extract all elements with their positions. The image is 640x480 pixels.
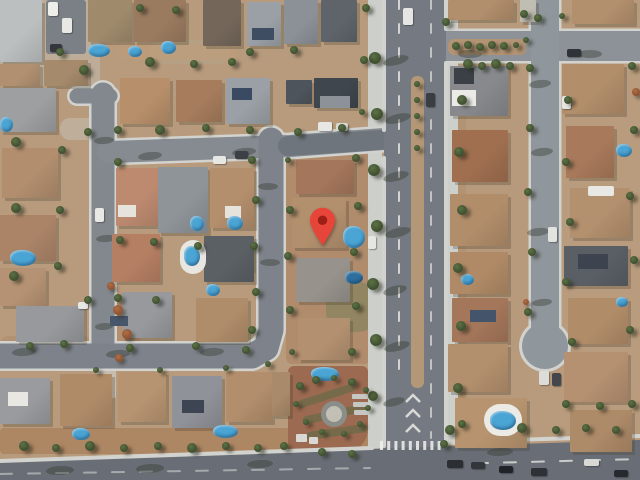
house-roof xyxy=(286,80,312,104)
crosswalk-tick xyxy=(416,441,419,450)
tree xyxy=(348,378,356,386)
vehicle xyxy=(567,49,581,57)
tree xyxy=(223,365,229,371)
house-roof xyxy=(88,0,132,42)
tree xyxy=(60,340,68,348)
house-roof xyxy=(321,0,357,42)
tree xyxy=(440,440,448,448)
swimming-pool xyxy=(0,117,13,132)
tree xyxy=(331,375,337,381)
swimming-pool xyxy=(190,216,204,231)
vehicle xyxy=(447,460,463,468)
tree xyxy=(152,296,160,304)
tree xyxy=(318,448,326,456)
house-roof xyxy=(564,352,628,402)
tree xyxy=(319,429,325,435)
tree xyxy=(9,271,19,281)
crosswalk-tick xyxy=(394,441,397,450)
house-roof xyxy=(566,126,614,178)
tree xyxy=(596,402,604,410)
tree xyxy=(116,236,124,244)
tree-shadow xyxy=(258,183,278,190)
tree xyxy=(457,95,467,105)
street-c-east xyxy=(288,140,380,146)
tree xyxy=(348,450,356,458)
house-roof xyxy=(296,160,354,194)
vehicle xyxy=(471,462,485,469)
house-roof xyxy=(0,0,42,62)
road-median xyxy=(411,76,424,388)
house-roof xyxy=(118,372,166,422)
house-roof xyxy=(298,318,350,360)
tree xyxy=(453,263,463,273)
tree xyxy=(352,302,360,310)
tree xyxy=(354,202,362,210)
swimming-pool xyxy=(128,46,142,57)
tree xyxy=(367,278,379,290)
vehicle xyxy=(368,236,376,249)
swimming-pool xyxy=(213,425,238,438)
tree xyxy=(294,128,302,136)
tree xyxy=(534,14,542,22)
tree-shadow xyxy=(578,50,602,58)
tree xyxy=(194,242,202,250)
tree xyxy=(488,41,496,49)
crosswalk-tick xyxy=(380,441,383,450)
tree xyxy=(566,218,574,226)
tree xyxy=(246,48,254,56)
tree xyxy=(562,158,570,166)
tree xyxy=(248,156,256,164)
tree-shadow xyxy=(260,259,280,266)
house-roof xyxy=(572,0,634,24)
tree xyxy=(476,43,484,51)
house-roof xyxy=(296,258,350,302)
tree xyxy=(202,124,210,132)
tree xyxy=(155,125,165,135)
tree xyxy=(56,48,64,56)
swimming-pool xyxy=(206,284,220,296)
tree xyxy=(526,64,534,72)
tree xyxy=(289,349,295,355)
tree xyxy=(414,145,420,151)
house-roof xyxy=(272,372,290,416)
tree xyxy=(463,59,473,69)
tree xyxy=(626,192,634,200)
tree xyxy=(582,424,590,432)
tree xyxy=(628,62,636,70)
tree xyxy=(513,42,519,48)
tree xyxy=(506,62,514,70)
tree xyxy=(464,41,472,49)
roof-detail xyxy=(470,310,496,322)
swimming-pool xyxy=(161,41,176,54)
tree xyxy=(456,321,466,331)
tree xyxy=(286,206,294,214)
tree xyxy=(517,423,527,433)
tree xyxy=(371,220,383,232)
tree xyxy=(11,137,21,147)
tree xyxy=(250,242,258,250)
tree xyxy=(26,342,34,350)
tree xyxy=(452,42,460,50)
crosswalk-tick xyxy=(402,441,405,450)
tree xyxy=(626,326,634,334)
tree xyxy=(352,154,360,162)
tree xyxy=(453,383,463,393)
house-roof xyxy=(0,64,40,86)
tree xyxy=(341,431,347,437)
house-roof xyxy=(16,306,84,342)
rust-tree xyxy=(115,354,123,362)
roof-detail xyxy=(8,392,28,406)
tree xyxy=(157,367,163,373)
tree xyxy=(520,10,528,18)
tree xyxy=(126,344,134,352)
house-roof xyxy=(204,236,254,282)
tree xyxy=(187,443,197,453)
tree xyxy=(19,441,29,451)
tree xyxy=(368,391,378,401)
vehicle xyxy=(403,8,413,25)
rust-tree xyxy=(523,299,529,305)
tree xyxy=(612,426,620,434)
house-roof xyxy=(196,298,248,342)
tree xyxy=(552,426,560,434)
swimming-pool xyxy=(10,250,36,266)
tree xyxy=(414,129,420,135)
tree xyxy=(286,306,294,314)
house-roof xyxy=(284,0,318,44)
vehicle xyxy=(48,2,58,16)
tree xyxy=(252,196,260,204)
tree xyxy=(454,147,464,157)
vehicle xyxy=(614,470,628,477)
tree xyxy=(114,294,122,302)
tree xyxy=(365,405,371,411)
tree xyxy=(491,59,501,69)
tree xyxy=(150,238,158,246)
swimming-pool xyxy=(72,428,90,440)
crosswalk-tick xyxy=(430,441,433,450)
tree xyxy=(357,421,363,427)
house-roof xyxy=(450,252,508,294)
roof-detail xyxy=(182,400,204,413)
tree xyxy=(84,296,92,304)
vehicle xyxy=(95,208,104,222)
vehicle xyxy=(62,18,72,33)
rust-tree xyxy=(113,305,123,315)
house-roof xyxy=(2,148,58,198)
tree xyxy=(254,444,262,452)
rust-tree xyxy=(122,329,132,339)
vehicle xyxy=(213,156,226,164)
tree xyxy=(228,58,236,66)
swimming-pool xyxy=(343,226,365,248)
tree xyxy=(84,128,92,136)
house-roof xyxy=(570,410,632,452)
tree xyxy=(371,108,383,120)
tree xyxy=(11,203,21,213)
house-roof xyxy=(116,168,160,226)
swimming-pool xyxy=(616,144,632,157)
roof-detail xyxy=(454,68,474,84)
tree xyxy=(564,96,572,104)
house-roof xyxy=(226,372,272,422)
tree xyxy=(154,442,162,450)
tree xyxy=(145,57,155,67)
tree xyxy=(242,346,250,354)
tree xyxy=(445,425,455,435)
tree xyxy=(368,164,380,176)
tree xyxy=(338,124,346,132)
crosswalk-tick xyxy=(387,441,390,450)
house-roof xyxy=(0,268,46,306)
vehicle xyxy=(539,371,549,385)
crosswalk-tick xyxy=(409,441,412,450)
vehicle xyxy=(552,373,561,386)
tree xyxy=(414,97,420,103)
roof-detail xyxy=(588,186,614,196)
tree xyxy=(478,62,486,70)
tree xyxy=(280,442,288,450)
tree xyxy=(54,262,62,270)
tree xyxy=(562,278,570,286)
tree xyxy=(524,308,532,316)
roof-detail xyxy=(578,254,608,269)
roof-detail xyxy=(110,316,128,326)
rust-tree xyxy=(632,88,640,96)
tree xyxy=(458,420,466,428)
tree xyxy=(630,256,638,264)
map-pin-icon[interactable] xyxy=(310,205,335,248)
house-roof xyxy=(226,78,270,124)
crosswalk-tick xyxy=(423,441,426,450)
tree xyxy=(246,126,254,134)
tree xyxy=(363,387,369,393)
swimming-pool xyxy=(345,271,363,284)
tree xyxy=(58,146,66,154)
tree xyxy=(350,248,358,256)
house-roof xyxy=(176,80,222,122)
tree xyxy=(190,60,198,68)
tree xyxy=(284,252,292,260)
house-roof xyxy=(60,374,112,426)
tree xyxy=(568,338,576,346)
tree xyxy=(628,400,636,408)
tree xyxy=(457,205,467,215)
tree xyxy=(559,13,565,19)
tree xyxy=(369,52,381,64)
tree xyxy=(442,18,450,26)
tree xyxy=(562,400,570,408)
tree xyxy=(370,334,382,346)
tree xyxy=(528,248,536,256)
tree xyxy=(114,158,122,166)
tree xyxy=(120,444,128,452)
tree xyxy=(303,419,309,425)
tree xyxy=(192,342,200,350)
vehicle xyxy=(235,151,248,159)
roof-detail xyxy=(252,28,274,40)
roof-detail xyxy=(320,96,350,108)
swimming-pool xyxy=(227,216,243,230)
roof-detail xyxy=(118,205,136,217)
vehicle xyxy=(584,459,599,466)
roof-detail xyxy=(232,88,252,100)
swimming-pool xyxy=(461,274,474,285)
vehicle xyxy=(548,227,557,242)
satellite-map-canvas[interactable] xyxy=(0,0,640,480)
rust-tree xyxy=(107,282,115,290)
tree xyxy=(523,37,529,43)
swimming-pool xyxy=(88,44,110,57)
tree xyxy=(290,46,298,54)
tree xyxy=(285,157,291,163)
tree xyxy=(252,288,260,296)
vehicle xyxy=(318,122,332,131)
vehicle xyxy=(426,93,435,107)
tree xyxy=(526,124,534,132)
tree xyxy=(362,4,370,12)
vehicle xyxy=(499,466,513,473)
tree xyxy=(93,367,99,373)
tree xyxy=(360,56,368,64)
tree xyxy=(296,382,304,390)
tree xyxy=(52,444,60,452)
swimming-pool xyxy=(616,297,628,307)
tree xyxy=(348,348,356,356)
tree xyxy=(414,113,420,119)
tree xyxy=(248,326,256,334)
swimming-pool xyxy=(490,411,516,430)
house-roof xyxy=(448,0,514,20)
house-roof xyxy=(120,78,170,124)
house-roof xyxy=(450,194,508,246)
tree xyxy=(293,401,299,407)
tree xyxy=(312,376,320,384)
tree xyxy=(500,42,508,50)
house-roof xyxy=(562,64,624,114)
tree xyxy=(114,126,122,134)
tree xyxy=(136,4,144,12)
tree xyxy=(630,126,638,134)
tree xyxy=(56,206,64,214)
tree xyxy=(85,441,95,451)
tree xyxy=(222,442,230,450)
tree xyxy=(524,188,532,196)
tree xyxy=(265,361,271,367)
tree-shadow xyxy=(458,50,482,58)
house-roof xyxy=(203,0,241,46)
vehicle xyxy=(531,468,547,476)
tree xyxy=(79,65,89,75)
tree xyxy=(359,109,365,115)
tree xyxy=(414,81,420,87)
tree xyxy=(172,6,180,14)
